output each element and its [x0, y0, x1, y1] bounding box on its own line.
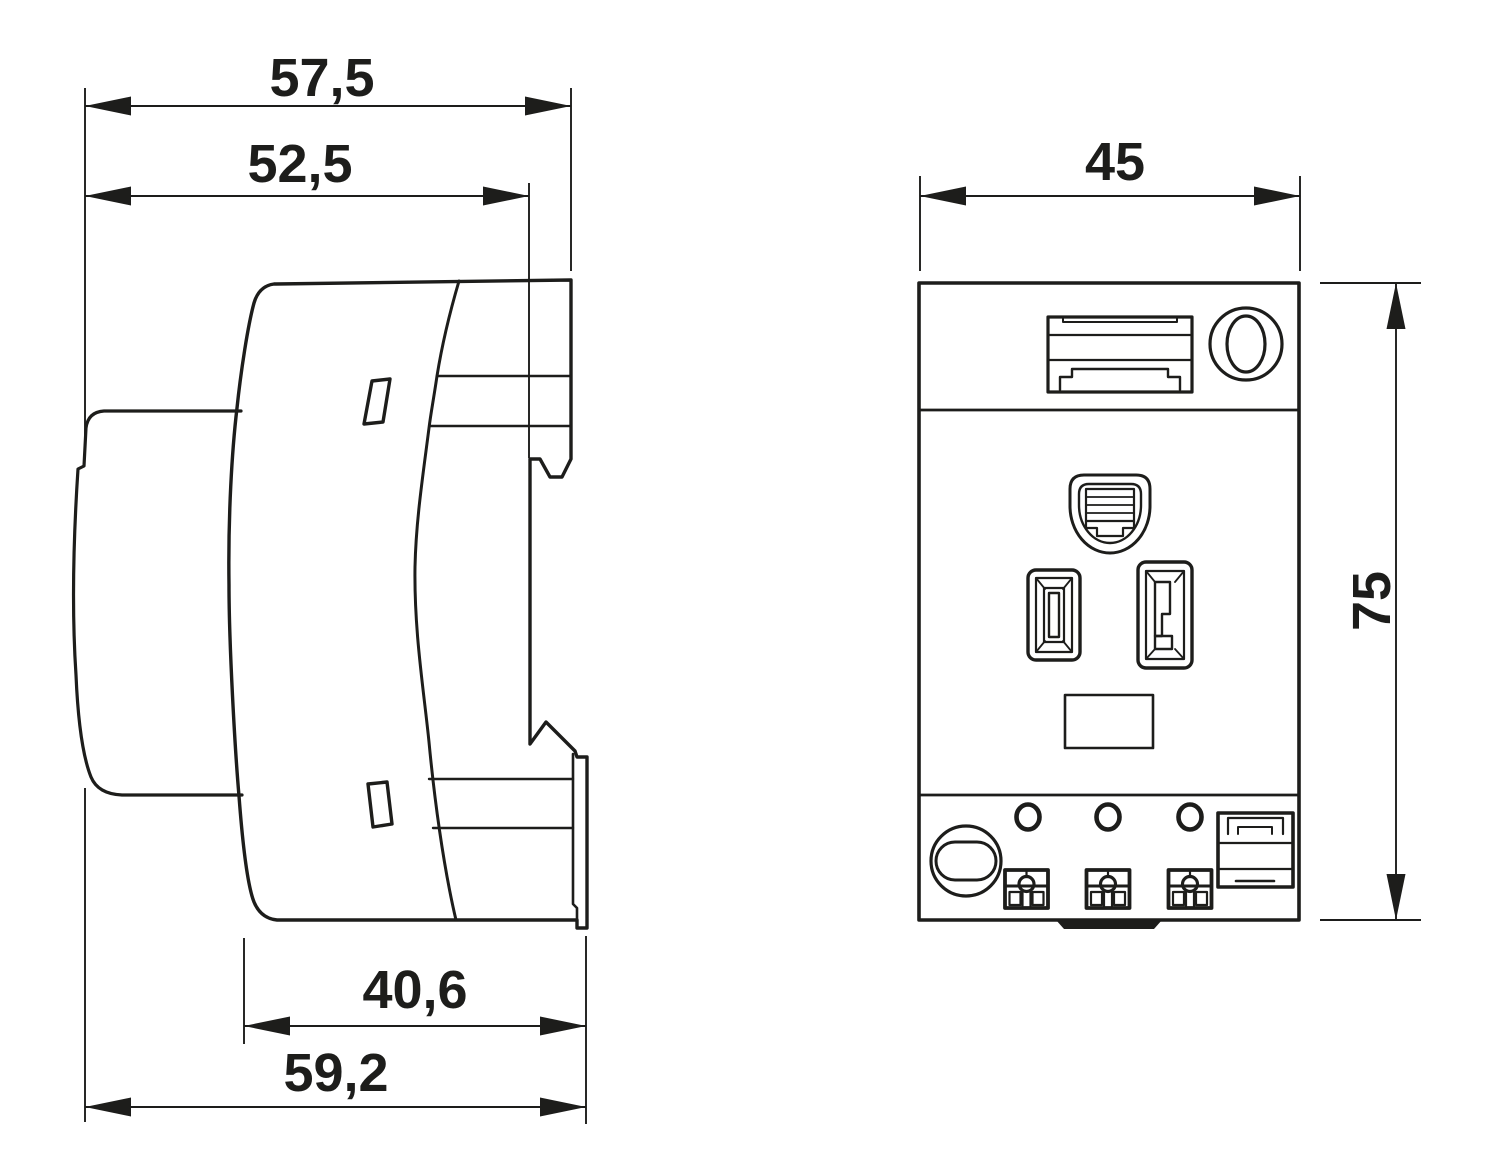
dim-label-75: 75	[1342, 571, 1402, 631]
dimension-57-5: 57,5	[85, 48, 571, 116]
dim-label-59-2: 59,2	[283, 1043, 388, 1103]
arrowhead-up	[1387, 283, 1406, 329]
arrowhead-left	[85, 187, 131, 206]
terminal-block-2	[1087, 870, 1130, 908]
led-indicators	[1017, 805, 1202, 830]
dim-label-45: 45	[1085, 132, 1145, 192]
arrowhead-right	[540, 1017, 586, 1036]
led-indicator-1	[1017, 805, 1040, 830]
ground-slot	[1070, 475, 1150, 553]
marking-oval	[1210, 308, 1282, 380]
arrowhead-right	[1254, 187, 1300, 206]
dim-label-40-6: 40,6	[362, 960, 467, 1020]
arrowhead-right	[540, 1098, 586, 1117]
vent-slot-lower	[368, 782, 392, 827]
socket-slot-right	[1138, 562, 1192, 668]
dimension-59-2: 59,2	[85, 1043, 586, 1117]
arrowhead-down	[1387, 874, 1406, 920]
label-holder-bottom-tab	[1060, 369, 1180, 390]
arrowhead-right	[525, 97, 571, 116]
front-view	[919, 283, 1299, 929]
label-holder	[1048, 317, 1192, 392]
rating-window	[1065, 695, 1153, 748]
arrowhead-left	[920, 187, 966, 206]
arrowhead-left	[85, 97, 131, 116]
side-housing-outline	[229, 280, 587, 928]
arrowhead-left	[244, 1017, 290, 1036]
technical-drawing-page: 57,5 52,5 45 75 40,6	[0, 0, 1500, 1172]
dim-label-57-5: 57,5	[269, 48, 374, 108]
dimension-52-5: 52,5	[85, 134, 529, 206]
vent-slot-upper	[364, 379, 390, 424]
led-indicator-3	[1179, 805, 1202, 830]
dimension-75: 75	[1342, 283, 1406, 920]
side-view	[74, 280, 587, 928]
arrowhead-right	[483, 187, 529, 206]
socket-slot-left	[1028, 570, 1080, 660]
arrowhead-left	[85, 1098, 131, 1117]
terminal-block-1	[1005, 870, 1048, 908]
plug-connector-block	[1218, 813, 1293, 887]
dimension-drawing-svg: 57,5 52,5 45 75 40,6	[0, 0, 1500, 1172]
test-button-oval	[931, 826, 1001, 896]
bottom-coding-tab	[1056, 920, 1162, 929]
rail-clip-back-section	[74, 411, 242, 795]
led-indicator-2	[1097, 805, 1120, 830]
dim-label-52-5: 52,5	[247, 134, 352, 194]
dimensions: 57,5 52,5 45 75 40,6	[85, 48, 1421, 1124]
terminal-block-3	[1169, 870, 1212, 908]
dimension-45: 45	[920, 132, 1300, 206]
dimension-40-6: 40,6	[244, 960, 586, 1036]
